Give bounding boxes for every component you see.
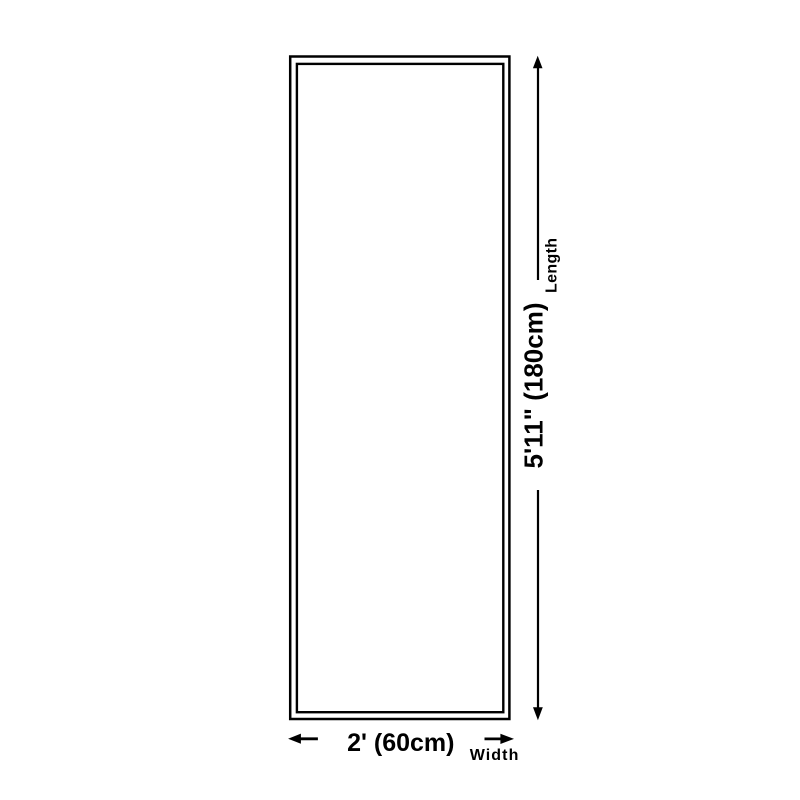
svg-text:Length: Length <box>544 238 561 293</box>
svg-text:5'11" (180cm): 5'11" (180cm) <box>519 303 549 469</box>
svg-text:Width: Width <box>470 747 520 764</box>
svg-text:2' (60cm): 2' (60cm) <box>347 729 454 757</box>
